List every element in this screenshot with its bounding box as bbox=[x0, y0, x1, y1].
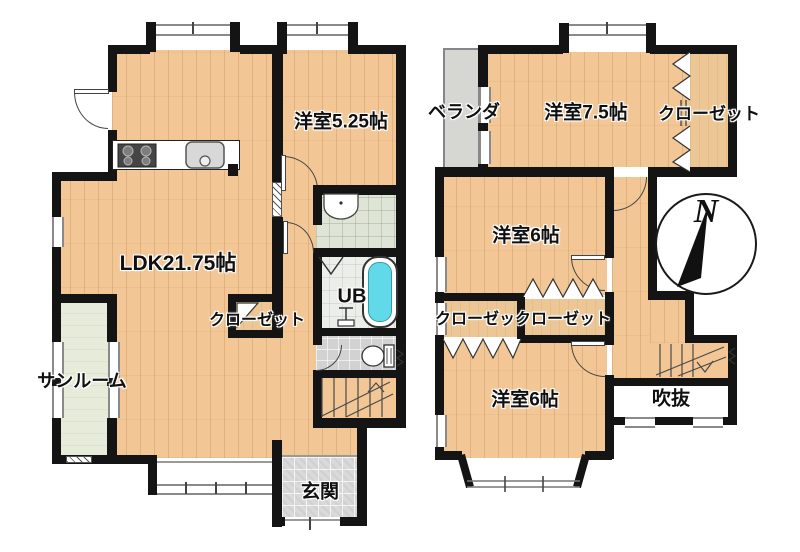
bay-window-bedroom6s bbox=[461, 455, 586, 492]
stove-icon bbox=[118, 144, 156, 167]
shape bbox=[124, 157, 132, 165]
bath-faucet-icon bbox=[338, 308, 354, 326]
shape bbox=[123, 146, 133, 156]
shape bbox=[673, 52, 690, 100]
label-closets-mid: クローゼックローゼット bbox=[435, 305, 611, 329]
label-closet-2f-top: クローゼット bbox=[658, 100, 760, 125]
label-bedroom525: 洋室5.25帖 bbox=[294, 107, 388, 134]
shape bbox=[362, 346, 384, 366]
shape bbox=[673, 126, 690, 172]
shape bbox=[339, 201, 342, 204]
label-closet-1f: クローゼット bbox=[209, 306, 305, 330]
washbasin-icon bbox=[324, 194, 358, 219]
stairs-1f-marks bbox=[322, 378, 393, 417]
toilet-icon bbox=[362, 345, 394, 367]
vent-icon bbox=[397, 350, 403, 366]
floor-plan: N LDK21.75帖 洋室5.25帖 クローゼット サンルーム UB 玄関 ベ… bbox=[0, 0, 800, 552]
label-bedroom6-north: 洋室6帖 bbox=[492, 221, 560, 248]
bath-door-icon bbox=[319, 257, 343, 274]
label-entrance: 玄関 bbox=[301, 477, 339, 504]
folding-door-closet-right bbox=[523, 279, 603, 297]
label-bedroom75: 洋室7.5帖 bbox=[544, 98, 627, 125]
shape bbox=[118, 144, 156, 167]
shape bbox=[678, 357, 726, 376]
label-sunroom: サンルーム bbox=[37, 367, 126, 393]
stairs-2f-marks bbox=[656, 344, 726, 377]
label-veranda: ベランダ bbox=[428, 98, 500, 124]
compass: N bbox=[656, 193, 756, 294]
label-unit-bath: UB bbox=[338, 286, 367, 309]
shape bbox=[141, 146, 151, 156]
label-void: 吹抜 bbox=[652, 384, 690, 411]
shape bbox=[384, 345, 394, 367]
vent-icon bbox=[729, 348, 735, 364]
label-bedroom6-south: 洋室6帖 bbox=[491, 385, 559, 412]
shape bbox=[142, 157, 150, 165]
label-ldk: LDK21.75帖 bbox=[120, 247, 237, 277]
folding-door-closet-left bbox=[443, 339, 521, 358]
shape bbox=[324, 194, 358, 219]
sink-icon bbox=[186, 142, 224, 168]
shape bbox=[200, 156, 210, 166]
shape bbox=[338, 320, 354, 326]
